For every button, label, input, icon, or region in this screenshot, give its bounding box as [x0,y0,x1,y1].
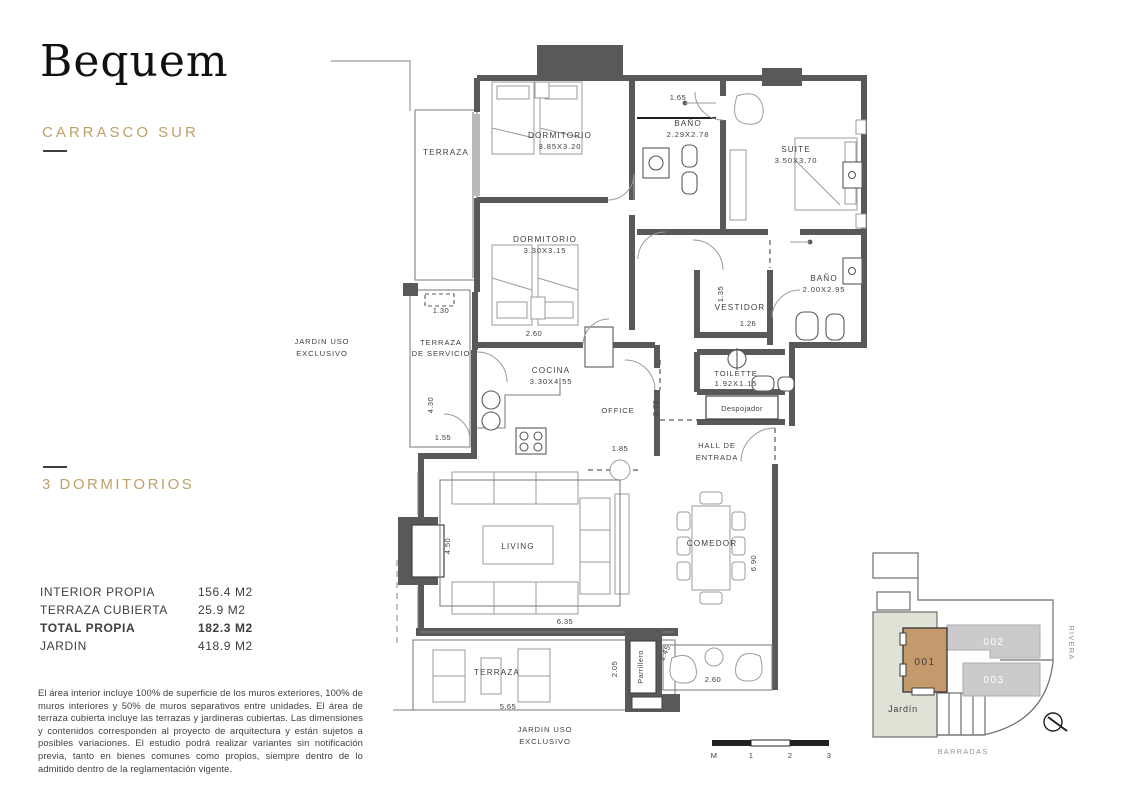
svg-text:2.05: 2.05 [610,661,619,677]
svg-text:DE SERVICIO: DE SERVICIO [412,349,471,358]
svg-text:VESTIDOR: VESTIDOR [715,303,766,312]
svg-text:DORMITORIO: DORMITORIO [528,131,592,140]
svg-text:Jardín: Jardín [888,704,918,714]
svg-text:4.50: 4.50 [443,538,452,554]
svg-text:1.26: 1.26 [740,319,756,328]
svg-text:Despojador: Despojador [721,404,763,413]
svg-text:TERRAZA: TERRAZA [474,668,520,677]
cocina-fixtures [477,378,560,454]
svg-text:DORMITORIO: DORMITORIO [513,235,577,244]
svg-text:4.30: 4.30 [426,397,435,413]
svg-text:2.73: 2.73 [651,400,660,416]
svg-text:COCINA: COCINA [532,366,570,375]
area-label: JARDIN [40,637,198,655]
svg-text:M: M [711,751,718,760]
project-location: CARRASCO SUR [42,124,199,141]
svg-text:SUITE: SUITE [781,145,811,154]
north-compass-icon [1044,713,1067,731]
area-label: TOTAL PROPIA [40,619,198,637]
floorplan-drawing: TERRAZA [250,30,1123,790]
divider-dash [43,466,67,468]
svg-text:6.35: 6.35 [557,617,573,626]
svg-text:2.00X2.95: 2.00X2.95 [803,285,846,294]
brand-logo: Bequem [40,36,229,87]
svg-text:2.60: 2.60 [526,329,542,338]
svg-text:1.55: 1.55 [435,433,451,442]
svg-text:EXCLUSIVO: EXCLUSIVO [296,349,348,358]
svg-text:BAÑO: BAÑO [810,273,838,283]
area-label: INTERIOR PROPIA [40,583,198,601]
svg-text:JARDIN USO: JARDIN USO [295,337,350,346]
svg-text:003: 003 [983,675,1004,686]
svg-text:3.85X3.20: 3.85X3.20 [539,142,582,151]
svg-text:2.29X2.78: 2.29X2.78 [667,130,710,139]
keyplan: 001 002 003 Jardín RIVERA BARRADAS [873,553,1076,756]
svg-text:1.30: 1.30 [433,306,449,315]
room-terraza-norte: TERRAZA [415,110,477,280]
bano1-fixtures [643,101,716,194]
svg-text:3.50X3.70: 3.50X3.70 [775,156,818,165]
svg-text:1: 1 [749,751,754,760]
svg-text:BAÑO: BAÑO [674,118,702,128]
svg-text:RIVERA: RIVERA [1067,625,1076,660]
page: Bequem CARRASCO SUR 3 DORMITORIOS INTERI… [0,0,1123,794]
svg-text:2.60: 2.60 [705,675,721,684]
svg-text:ENTRADA: ENTRADA [696,453,739,462]
svg-text:BARRADAS: BARRADAS [938,747,989,756]
svg-text:3.30X3.15: 3.30X3.15 [524,246,567,255]
svg-text:JARDIN USO: JARDIN USO [518,725,573,734]
svg-text:5.65: 5.65 [500,702,516,711]
svg-text:1.85: 1.85 [612,444,628,453]
svg-text:TERRAZA: TERRAZA [423,148,469,157]
svg-text:OFFICE: OFFICE [601,406,634,415]
living-furniture [440,460,630,614]
svg-text:1.35: 1.35 [716,286,725,302]
unit-type-label: 3 DORMITORIOS [42,476,194,493]
svg-text:TERRAZA: TERRAZA [420,338,462,347]
svg-text:Parrillero: Parrillero [636,650,645,684]
svg-text:001: 001 [914,657,935,668]
svg-text:LIVING: LIVING [501,542,534,551]
scale-bar: M 1 2 3 [711,740,832,760]
svg-text:HALL DE: HALL DE [698,441,736,450]
svg-text:3: 3 [827,751,832,760]
svg-text:1.92X1.15: 1.92X1.15 [715,379,758,388]
svg-text:EXCLUSIVO: EXCLUSIVO [519,737,571,746]
svg-text:3.30X4.55: 3.30X4.55 [530,377,573,386]
svg-text:COMEDOR: COMEDOR [687,539,737,548]
area-label: TERRAZA CUBIERTA [40,601,198,619]
property-lines [331,61,414,710]
divider-dash [43,150,67,152]
svg-text:6.90: 6.90 [749,555,758,571]
svg-text:1.65: 1.65 [670,93,686,102]
svg-text:TOILETTE: TOILETTE [714,369,757,378]
comedor-furniture [677,492,745,604]
svg-text:2: 2 [788,751,793,760]
dorm2-furniture [492,245,578,325]
svg-text:002: 002 [983,637,1004,648]
